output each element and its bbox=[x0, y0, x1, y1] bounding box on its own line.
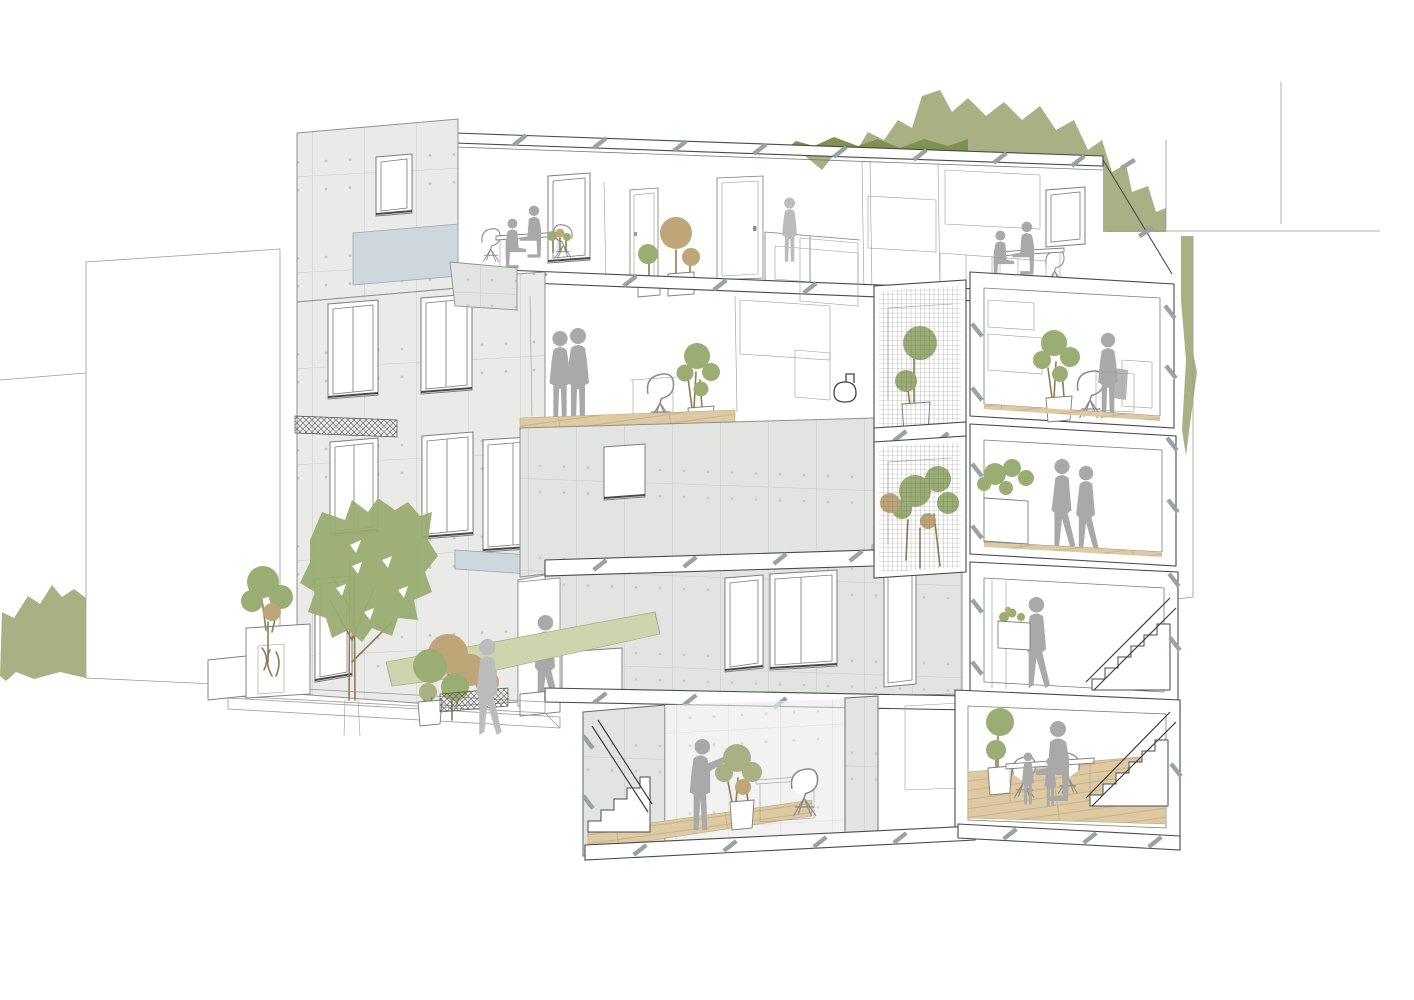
planter-boxes bbox=[208, 624, 310, 700]
main-building bbox=[295, 119, 1183, 860]
planter-bush-r2 bbox=[977, 459, 1034, 544]
toilet bbox=[834, 374, 856, 402]
architectural-section-illustration bbox=[0, 0, 1414, 1000]
ground-window-wide bbox=[770, 570, 837, 670]
facade-window bbox=[328, 300, 378, 399]
tower-window bbox=[376, 154, 412, 216]
attic-door-right bbox=[717, 176, 763, 280]
drawing-canvas bbox=[0, 0, 1414, 1000]
attic-balcony-window bbox=[1046, 187, 1085, 247]
ground-window bbox=[725, 575, 763, 672]
right-room-middle bbox=[970, 424, 1176, 566]
attic-figure-partition bbox=[782, 198, 797, 262]
right-room-top bbox=[970, 272, 1174, 428]
foliage-sliver-right bbox=[1181, 236, 1197, 456]
attic-window bbox=[548, 173, 590, 263]
attic-partition bbox=[765, 232, 860, 284]
dining-room bbox=[955, 690, 1180, 842]
mesh-loggia-lower bbox=[874, 436, 966, 578]
concrete-tower bbox=[297, 119, 458, 302]
attic-figure-pair-left bbox=[506, 206, 542, 269]
left-shrub-mass bbox=[0, 585, 86, 681]
basement-partition bbox=[845, 696, 878, 842]
facade-window bbox=[421, 294, 472, 394]
volume-window bbox=[604, 444, 645, 500]
right-room-ground bbox=[970, 562, 1178, 704]
facade-hatch-band bbox=[295, 416, 397, 437]
mesh-loggia-upper bbox=[874, 280, 966, 434]
attic-door-left bbox=[630, 188, 658, 282]
entry-door bbox=[884, 570, 916, 687]
tower-roof-terrace bbox=[450, 262, 517, 310]
mesh-screen bbox=[879, 442, 961, 573]
tower-spandrel-panel bbox=[353, 224, 458, 285]
mesh-screen bbox=[879, 286, 961, 429]
figure-couple-l2 bbox=[550, 328, 589, 422]
third-floor-interior bbox=[520, 238, 858, 432]
